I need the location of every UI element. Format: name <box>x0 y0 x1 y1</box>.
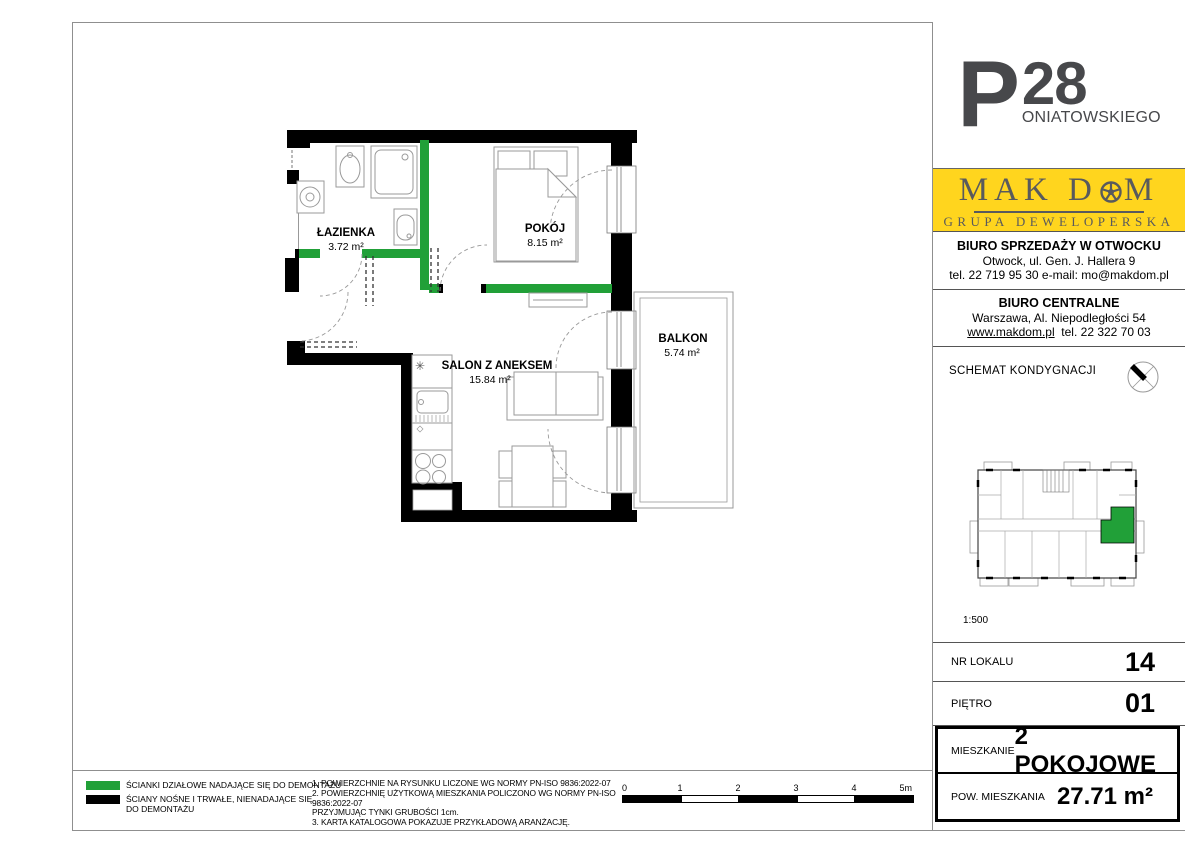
scale-tick-label: 5m <box>899 783 912 793</box>
kitchen-annex <box>412 355 452 484</box>
scale-bar-segments <box>622 795 914 803</box>
sales-office-title: BIURO SPRZEDAŻY W OTWOCKU <box>933 239 1185 254</box>
apartment-type-row: MIESZKANIE 2 POKOJOWE <box>938 729 1177 774</box>
north-arrow-icon <box>1121 355 1165 399</box>
apartment-type-label: MIESZKANIE <box>951 745 1015 757</box>
logo-initial: P <box>957 62 1017 126</box>
logo-name-rest: ONIATOWSKIEGO <box>1022 109 1161 127</box>
sales-office-block: BIURO SPRZEDAŻY W OTWOCKU Otwock, ul. Ge… <box>933 232 1185 290</box>
load-bearing-wall-swatch <box>86 795 120 804</box>
central-office-phone: tel. 22 322 70 03 <box>1061 325 1150 339</box>
legend-load-bearing-label-1: ŚCIANY NOŚNE I TRWAŁE, NIENADAJĄCE SIĘ <box>126 794 312 804</box>
floor-schematic-block: SCHEMAT KONDYGNACJI <box>933 347 1185 643</box>
apartment-type-value: 2 POKOJOWE <box>1015 723 1156 779</box>
brand-m: M <box>1124 172 1159 208</box>
room-label-bedroom: POKÓJ <box>525 222 565 235</box>
legend-item-load-bearing: ŚCIANY NOŚNE I TRWAŁE, NIENADAJĄCE SIĘ D… <box>86 794 341 814</box>
fridge-mark: ✳ <box>415 359 425 373</box>
apartment-area-label: POW. MIESZKANIA <box>951 791 1045 803</box>
building-floor-schematic: 1:500 <box>961 455 1186 635</box>
partition-wall-swatch <box>86 781 120 790</box>
footnote-line: 3. KARTA KATALOGOWA POKAZUJE PRZYKŁADOWĄ… <box>312 818 617 828</box>
schematic-title: SCHEMAT KONDYGNACJI <box>949 365 1096 377</box>
floor-value: 01 <box>1125 688 1155 719</box>
central-office-title: BIURO CENTRALNE <box>933 296 1185 311</box>
room-area-balcony: 5.74 m² <box>664 347 700 359</box>
makdom-logo: MAK DM <box>933 169 1185 210</box>
unit-number-value: 14 <box>1125 647 1155 678</box>
apartment-summary-box: MIESZKANIE 2 POKOJOWE POW. MIESZKANIA 27… <box>935 726 1180 822</box>
sales-office-address: Otwock, ul. Gen. J. Hallera 9 <box>933 254 1185 268</box>
floor-label: PIĘTRO <box>951 698 992 710</box>
unit-number-label: NR LOKALU <box>951 656 1013 668</box>
balcony-outline <box>634 292 733 508</box>
room-area-bathroom: 3.72 m² <box>328 241 364 253</box>
logo-number: 28 <box>1022 62 1161 106</box>
wall-legend: ŚCIANKI DZIAŁOWE NADAJĄCE SIĘ DO DEMONTA… <box>86 780 341 818</box>
installation-shaft <box>413 490 452 510</box>
kitchen-sink <box>417 391 448 413</box>
sales-office-contact: tel. 22 719 95 30 e-mail: mo@makdom.pl <box>933 268 1185 282</box>
central-office-address: Warszawa, Al. Niepodległości 54 <box>933 311 1185 325</box>
wheel-logo-icon <box>1099 176 1123 210</box>
legend-partition-label: ŚCIANKI DZIAŁOWE NADAJĄCE SIĘ DO DEMONTA… <box>126 780 341 790</box>
footer-divider <box>72 770 932 771</box>
living-room-furniture <box>499 372 603 507</box>
footnote-line: 2. POWIERZCHNIĘ UŻYTKOWĄ MIESZKANIA POLI… <box>312 789 617 809</box>
legend-load-bearing-label-2: DO DEMONTAŻU <box>126 804 312 814</box>
floor-row: PIĘTRO 01 <box>933 682 1185 726</box>
dining-table <box>512 446 553 507</box>
load-bearing-walls <box>285 130 637 522</box>
brand-d: D <box>1068 172 1098 208</box>
footnotes: 1. POWIERZCHNIE NA RYSUNKU LICZONE WG NO… <box>312 779 617 828</box>
room-area-living: 15.84 m² <box>469 374 511 386</box>
unit-number-row: NR LOKALU 14 <box>933 643 1185 682</box>
scale-bar: 0 1 2 3 4 5m <box>622 783 914 803</box>
apartment-area-value: 27.71 m² <box>1057 783 1153 811</box>
schematic-scale: 1:500 <box>963 615 988 626</box>
project-logo-block: P 28 ONIATOWSKIEGO <box>933 22 1185 168</box>
room-label-living: SALON Z ANEKSEM <box>442 360 553 372</box>
wardrobe-dashed-lines <box>300 248 438 347</box>
scale-tick-label: 4 <box>851 783 856 793</box>
scale-tick-label: 2 <box>735 783 740 793</box>
catalog-card-page: { "project": { "logo_initial": "P", "log… <box>0 0 1200 848</box>
scale-tick-label: 1 <box>677 783 682 793</box>
room-label-bathroom: ŁAZIENKA <box>317 227 375 239</box>
website-link[interactable]: www.makdom.pl <box>967 325 1054 339</box>
info-sidebar: P 28 ONIATOWSKIEGO MAK DM GRUPA DEWELOPE… <box>932 22 1185 830</box>
apartment-area-row: POW. MIESZKANIA 27.71 m² <box>938 774 1177 819</box>
scale-tick-label: 3 <box>793 783 798 793</box>
floor-plan: ✳ ŁAZIENKA 3.72 m² POKÓJ 8.15 m² SALON Z… <box>72 22 932 770</box>
scale-tick-label: 0 <box>622 783 627 793</box>
windows <box>607 166 636 493</box>
room-label-balcony: BALKON <box>658 333 707 345</box>
legend-item-partition: ŚCIANKI DZIAŁOWE NADAJĄCE SIĘ DO DEMONTA… <box>86 780 341 790</box>
logo-rule <box>974 211 1144 213</box>
brand-mak: MAK <box>959 172 1054 208</box>
room-area-bedroom: 8.15 m² <box>527 237 563 249</box>
developer-subtitle: GRUPA DEWELOPERSKA <box>933 214 1185 230</box>
shower <box>371 146 417 198</box>
p28-logo: P 28 ONIATOWSKIEGO <box>933 22 1185 127</box>
central-office-block: BIURO CENTRALNE Warszawa, Al. Niepodległ… <box>933 290 1185 347</box>
developer-logo-block: MAK DM GRUPA DEWELOPERSKA <box>933 168 1185 232</box>
